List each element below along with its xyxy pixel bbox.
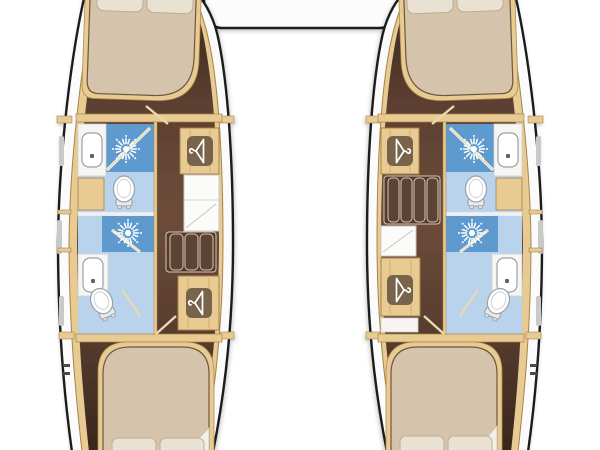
pillow bbox=[160, 438, 204, 450]
cockpit-connector bbox=[196, 0, 406, 30]
mattress bbox=[403, 0, 513, 97]
port-companionway-stairs bbox=[166, 232, 216, 272]
wardrobe-tile bbox=[186, 288, 212, 318]
stair-step bbox=[427, 178, 438, 222]
starboard-forward-bed bbox=[398, 0, 519, 102]
sink-icon bbox=[83, 258, 103, 292]
bathroom-divider bbox=[446, 212, 522, 216]
mattress bbox=[391, 347, 497, 450]
port-aft-bulkhead bbox=[76, 334, 222, 342]
pillow bbox=[112, 438, 156, 450]
port-wardrobe-aft bbox=[178, 276, 219, 330]
pillow bbox=[147, 0, 194, 14]
starboard-aft-bed bbox=[386, 342, 502, 450]
port-corridor-wall bbox=[154, 122, 157, 334]
port-forward-bed bbox=[82, 0, 203, 102]
pillow bbox=[97, 0, 144, 12]
starboard-wardrobe-aft bbox=[381, 258, 420, 332]
sink-icon bbox=[82, 133, 102, 167]
starboard-companionway-stairs bbox=[384, 176, 440, 224]
pillow bbox=[448, 436, 492, 450]
wardrobe-tile bbox=[187, 136, 213, 166]
sink-icon bbox=[497, 258, 517, 292]
floor-plan-canvas bbox=[0, 0, 600, 450]
port-wardrobe-forward bbox=[180, 128, 219, 174]
shelf-unit bbox=[184, 175, 219, 231]
port-aft-bathroom bbox=[78, 216, 154, 334]
wardrobe-tile bbox=[387, 136, 413, 166]
starboard-aft-bulkhead bbox=[378, 334, 524, 342]
floor-plan-svg bbox=[0, 0, 600, 450]
mattress bbox=[103, 347, 209, 450]
shower-head-icon bbox=[458, 219, 486, 247]
port-forward-bathroom bbox=[78, 124, 154, 216]
starboard-forward-bulkhead bbox=[378, 114, 524, 122]
starboard-aft-bathroom bbox=[446, 216, 522, 334]
shelf bbox=[381, 318, 418, 332]
pillow bbox=[406, 0, 453, 14]
starboard-vanity-shelves bbox=[381, 226, 416, 256]
pillow bbox=[400, 436, 444, 450]
mattress bbox=[87, 0, 197, 97]
toilet-icon bbox=[114, 176, 135, 209]
cabinet bbox=[78, 178, 104, 210]
shower-head-icon bbox=[460, 135, 488, 163]
starboard-corridor-wall bbox=[443, 122, 446, 334]
cabinet bbox=[496, 178, 522, 210]
shower-head-icon bbox=[112, 135, 140, 163]
stair-step bbox=[388, 178, 399, 222]
starboard-hull bbox=[366, 0, 543, 450]
port-vanity-shelves bbox=[184, 175, 219, 231]
toilet-icon bbox=[466, 176, 487, 209]
stair-step bbox=[185, 234, 198, 270]
port-aft-bed bbox=[98, 342, 214, 450]
wardrobe-tile bbox=[387, 275, 413, 305]
port-hull bbox=[57, 0, 234, 450]
stair-step bbox=[401, 178, 412, 222]
stair-step bbox=[170, 234, 183, 270]
shower-head-icon bbox=[114, 219, 142, 247]
bathroom-divider bbox=[78, 212, 154, 216]
stair-step bbox=[200, 234, 213, 270]
stair-step bbox=[414, 178, 425, 222]
starboard-wardrobe-forward bbox=[381, 128, 419, 174]
connector-pod bbox=[204, 0, 398, 28]
port-forward-bulkhead bbox=[76, 114, 222, 122]
sink-icon bbox=[498, 133, 518, 167]
starboard-forward-bathroom bbox=[446, 124, 522, 216]
pillow bbox=[456, 0, 503, 12]
